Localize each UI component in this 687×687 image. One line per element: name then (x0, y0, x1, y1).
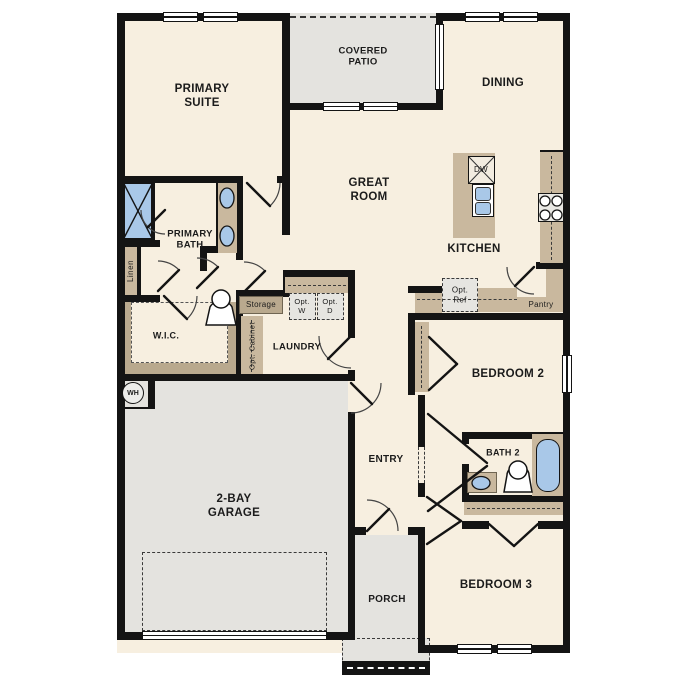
wall (148, 375, 155, 409)
cased-opening (418, 447, 425, 483)
wall (137, 247, 141, 295)
island-sink-basin (475, 187, 491, 201)
room-label-wic: W.I.C. (136, 331, 196, 342)
wall (348, 535, 355, 640)
wall (282, 21, 290, 235)
room-label-covered-patio: COVERED PATIO (332, 46, 394, 69)
wall (408, 286, 442, 293)
wall (348, 412, 355, 535)
bedroom2-closet-dash (421, 326, 422, 388)
window (203, 12, 238, 22)
wall (125, 407, 148, 409)
window (503, 12, 538, 22)
bath2-vanity (467, 472, 497, 493)
sliding-glass-door (435, 24, 444, 90)
label-storage: Storage (239, 300, 283, 310)
bedroom3-closet-dash (467, 508, 560, 509)
label-pantry: Pantry (519, 300, 563, 310)
porch-floor (355, 535, 418, 645)
label-opt-washer: Opt. W (291, 297, 313, 315)
room-label-bath2: BATH 2 (485, 448, 521, 459)
wall (408, 313, 570, 320)
bedroom2-closet-shelf (415, 322, 429, 392)
patio-roof-dashed-line (290, 16, 436, 18)
wall (462, 432, 469, 444)
wall (418, 395, 425, 447)
wall (117, 295, 160, 302)
wall (117, 13, 125, 640)
room-label-bedroom2: BEDROOM 2 (448, 368, 568, 382)
room-label-laundry: LAUNDRY (257, 341, 337, 352)
wall (408, 527, 425, 535)
island-sink-basin (475, 202, 491, 215)
wall (536, 262, 563, 269)
wall (418, 535, 425, 653)
label-linen: Linen (126, 260, 136, 282)
window (363, 102, 398, 111)
wall (236, 250, 243, 260)
kitchen-lower-cabinet (415, 293, 442, 313)
garage-door-track-dashed (142, 552, 327, 631)
room-label-primary-suite: PRIMARY SUITE (159, 83, 245, 111)
wall (462, 495, 563, 502)
window (163, 12, 198, 22)
label-opt-cabinet: Opt. Cabinet (248, 322, 257, 370)
room-label-entry: ENTRY (356, 454, 416, 466)
window (323, 102, 360, 111)
label-opt-refrigerator: Opt. Ref (447, 285, 473, 304)
wall (418, 645, 570, 653)
wall (283, 270, 355, 277)
bathtub (536, 439, 560, 492)
wall (462, 521, 489, 529)
water-heater: WH (122, 382, 144, 404)
room-label-dining: DINING (458, 77, 548, 91)
room-label-kitchen: KITCHEN (424, 243, 524, 257)
wall (563, 13, 570, 653)
garage-door (142, 631, 327, 640)
cooktop (538, 193, 564, 222)
laundry-counter-dash (288, 285, 346, 286)
window (465, 12, 500, 22)
room-label-primary-bath: PRIMARY BATH (158, 229, 222, 252)
wall (538, 521, 563, 529)
wall (348, 270, 355, 338)
window (497, 644, 532, 654)
label-opt-dryer: Opt. D (319, 297, 341, 315)
room-label-great-room: GREAT ROOM (339, 177, 399, 205)
kitchen-counter-2 (478, 288, 517, 312)
wall (418, 483, 425, 497)
porch-step-dash (347, 667, 425, 669)
wall (348, 527, 366, 535)
shower (121, 180, 155, 242)
wall (117, 632, 142, 640)
wall (237, 176, 243, 253)
label-dishwasher: DW (466, 165, 496, 175)
room-label-porch: PORCH (357, 594, 417, 606)
floor-plan: WH (0, 0, 687, 687)
wall (408, 313, 415, 395)
room-label-garage: 2-BAY GARAGE (194, 493, 274, 521)
room-label-bedroom3: BEDROOM 3 (436, 579, 556, 593)
window (457, 644, 492, 654)
